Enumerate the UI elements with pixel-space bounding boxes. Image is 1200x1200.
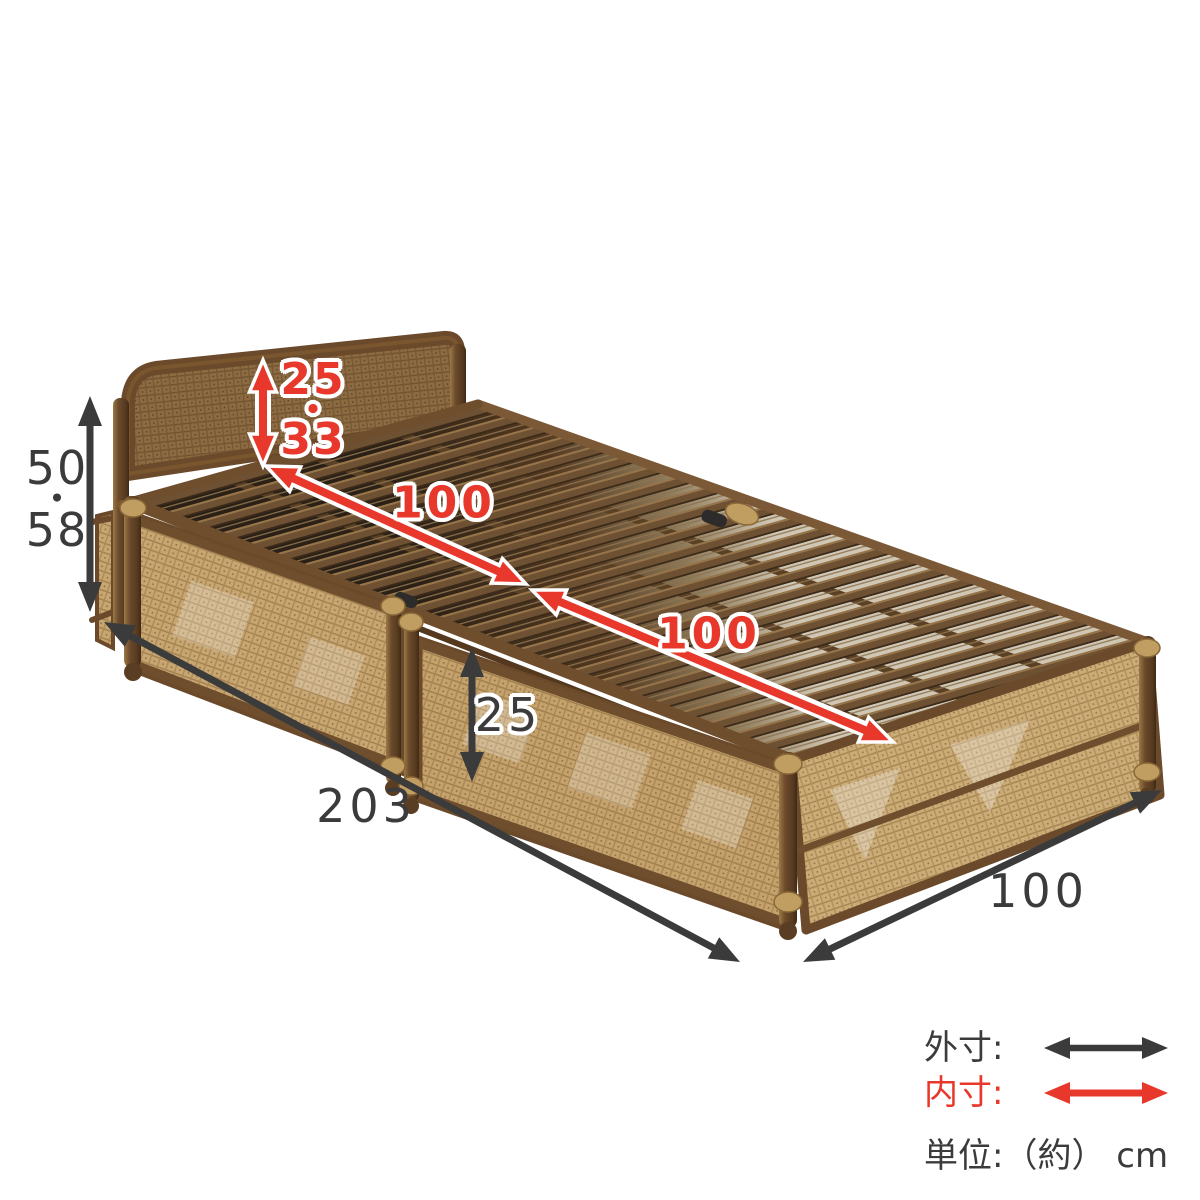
inner-dimension-arrow-icon bbox=[1044, 1082, 1168, 1104]
unit-note: 単位:（約） cm bbox=[924, 1138, 1168, 1174]
dimension-diagram: 50 ・ 58 25 ・ 33 100 100 25 203 100 外寸: 内… bbox=[0, 0, 1200, 1200]
inner-length-foot-label: 100 bbox=[657, 609, 761, 660]
legend-arrows bbox=[1044, 1037, 1168, 1104]
outer-dimension-arrow-icon bbox=[1044, 1037, 1168, 1059]
overall-height-bottom-value: 58 bbox=[26, 506, 89, 554]
legend-inner-label: 内寸: bbox=[924, 1075, 1003, 1111]
overall-length-label: 203 bbox=[316, 779, 416, 833]
headboard-height-label: 25 ・ 33 bbox=[280, 357, 345, 463]
bed-illustration bbox=[92, 338, 1160, 940]
legend-outer-label: 外寸: bbox=[924, 1030, 1003, 1066]
headboard-height-bottom-value: 33 bbox=[280, 417, 345, 463]
side-frame-height-label: 25 bbox=[475, 688, 542, 742]
overall-height-label: 50 ・ 58 bbox=[26, 444, 89, 554]
inner-length-head-label: 100 bbox=[392, 478, 496, 529]
bed-illustration-canvas bbox=[0, 0, 1200, 1200]
overall-width-label: 100 bbox=[988, 864, 1088, 918]
